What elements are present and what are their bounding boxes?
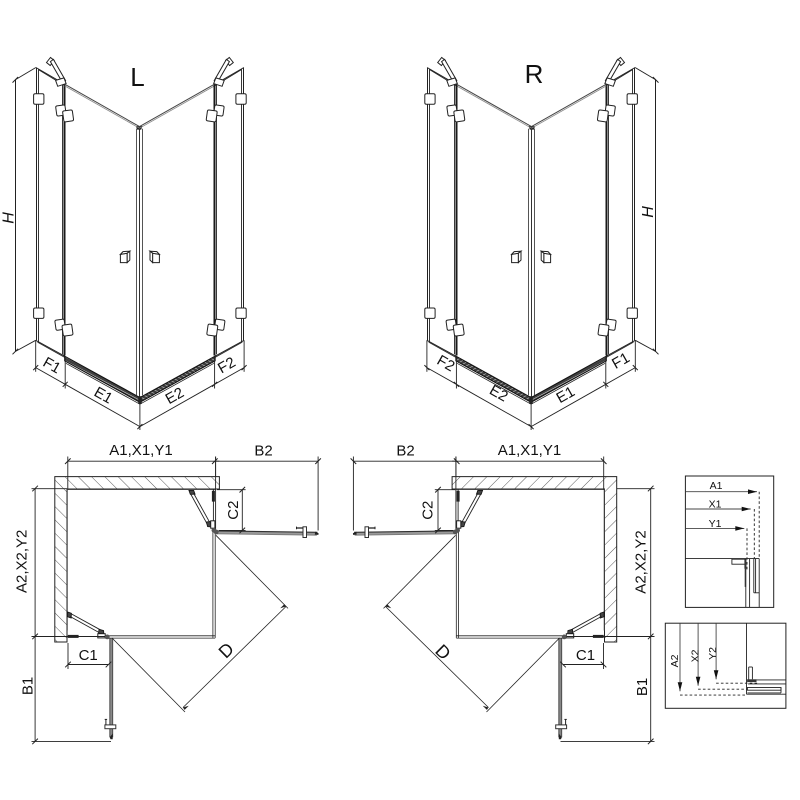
svg-text:H: H [640,206,657,218]
svg-text:H: H [1,212,18,224]
svg-text:A2,X2,Y2: A2,X2,Y2 [14,530,31,593]
svg-text:X1: X1 [709,499,722,511]
svg-text:C2: C2 [225,501,242,520]
svg-text:C1: C1 [576,647,595,664]
svg-text:B1: B1 [634,678,651,696]
svg-text:L: L [130,62,144,92]
svg-text:B1: B1 [20,677,37,695]
svg-text:Y1: Y1 [709,518,722,530]
svg-text:A2: A2 [669,654,681,667]
svg-text:X2: X2 [690,649,702,662]
svg-text:A1: A1 [710,480,723,492]
svg-text:C1: C1 [79,647,98,664]
svg-text:B2: B2 [254,443,272,460]
svg-text:A2,X2,Y2: A2,X2,Y2 [633,530,650,593]
svg-text:Y2: Y2 [707,647,719,660]
svg-text:C2: C2 [420,501,437,520]
svg-text:A1,X1,Y1: A1,X1,Y1 [109,442,172,459]
svg-text:B2: B2 [396,443,414,460]
svg-text:R: R [525,59,544,89]
svg-text:A1,X1,Y1: A1,X1,Y1 [498,442,561,459]
